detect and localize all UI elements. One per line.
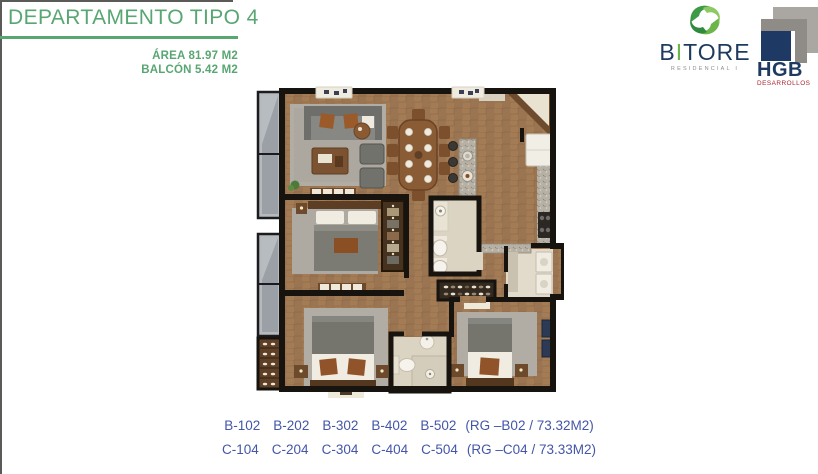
- hgb-mark-icon: [757, 5, 818, 63]
- unit-row-b: B-102 B-202 B-302 B-402 B-502 (RG –B02 /…: [224, 418, 593, 433]
- unit-label: C-504: [421, 442, 458, 457]
- hgb-tagline: DESARROLLOS: [757, 80, 818, 87]
- bitore-letters-rest: TORE: [683, 39, 750, 65]
- bitore-letter-b: B: [659, 39, 675, 65]
- hgb-logo: HGB DESARROLLOS: [757, 5, 818, 87]
- balcony-living: [258, 92, 282, 218]
- page-title: DEPARTAMENTO TIPO 4: [8, 6, 259, 30]
- bitore-logo: BITORE RESIDENCIAL I: [645, 0, 765, 72]
- bathroom-1: [433, 201, 448, 274]
- unit-label: B-202: [273, 418, 309, 433]
- unit-row-c: C-104 C-204 C-304 C-404 C-504 (RG –C04 /…: [222, 442, 596, 457]
- unit-note: (RG –C04 / 73.33M2): [467, 442, 596, 457]
- bitore-wordmark: BITORE: [645, 40, 765, 64]
- floor-plan-image: [254, 84, 564, 404]
- balcony-bedroom: [258, 234, 282, 336]
- stove: [538, 212, 552, 238]
- unit-specs: ÁREA 81.97 M2 BALCÓN 5.42 M2: [0, 49, 238, 77]
- unit-label: B-302: [322, 418, 358, 433]
- unit-list: B-102 B-202 B-302 B-402 B-502 (RG –B02 /…: [0, 418, 818, 457]
- toilet-icon: [399, 359, 415, 372]
- balcony-value: BALCÓN 5.42 M2: [0, 63, 238, 77]
- title-underline: [0, 36, 238, 39]
- area-value: ÁREA 81.97 M2: [0, 49, 238, 63]
- bitore-tagline: RESIDENCIAL I: [645, 66, 765, 72]
- hgb-wordmark: HGB: [757, 61, 818, 79]
- unit-label: C-404: [371, 442, 408, 457]
- unit-label: C-104: [222, 442, 259, 457]
- page-edge-line-top: [0, 0, 233, 2]
- bitore-swirl-icon: [677, 2, 733, 38]
- unit-label: C-304: [322, 442, 359, 457]
- brochure-page: DEPARTAMENTO TIPO 4 ÁREA 81.97 M2 BALCÓN…: [0, 0, 818, 474]
- unit-label: B-502: [420, 418, 456, 433]
- sink-icon: [420, 335, 434, 349]
- unit-label: B-402: [371, 418, 407, 433]
- unit-label: C-204: [272, 442, 309, 457]
- unit-label: B-102: [224, 418, 260, 433]
- unit-note: (RG –B02 / 73.32M2): [465, 418, 593, 433]
- shoe-closet: [258, 338, 282, 389]
- wardrobe: [382, 201, 404, 271]
